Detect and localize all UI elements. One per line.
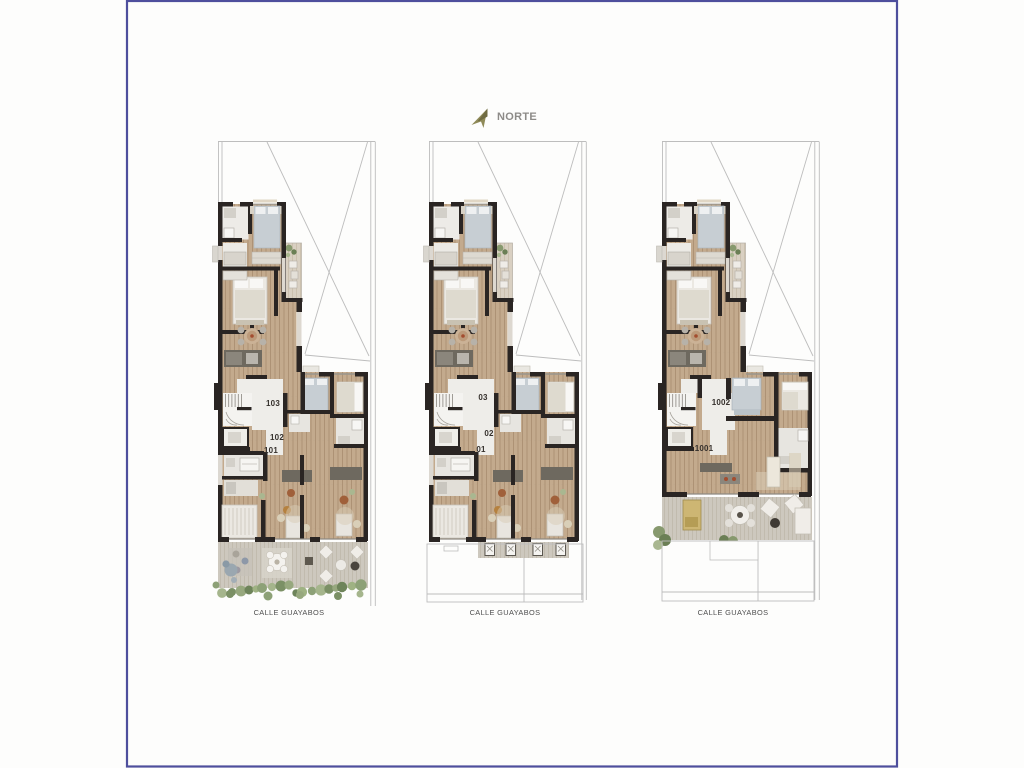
svg-text:03: 03 — [478, 393, 488, 402]
svg-text:02: 02 — [484, 429, 494, 438]
svg-text:1002: 1002 — [712, 398, 731, 407]
svg-text:01: 01 — [476, 445, 486, 454]
svg-text:1001: 1001 — [695, 444, 714, 453]
svg-text:102: 102 — [270, 433, 284, 442]
svg-text:CALLE GUAYABOS: CALLE GUAYABOS — [698, 608, 769, 617]
svg-text:103: 103 — [266, 399, 280, 408]
svg-text:CALLE GUAYABOS: CALLE GUAYABOS — [470, 608, 541, 617]
svg-text:CALLE GUAYABOS: CALLE GUAYABOS — [254, 608, 325, 617]
svg-text:NORTE: NORTE — [497, 111, 537, 123]
svg-text:101: 101 — [264, 446, 278, 455]
